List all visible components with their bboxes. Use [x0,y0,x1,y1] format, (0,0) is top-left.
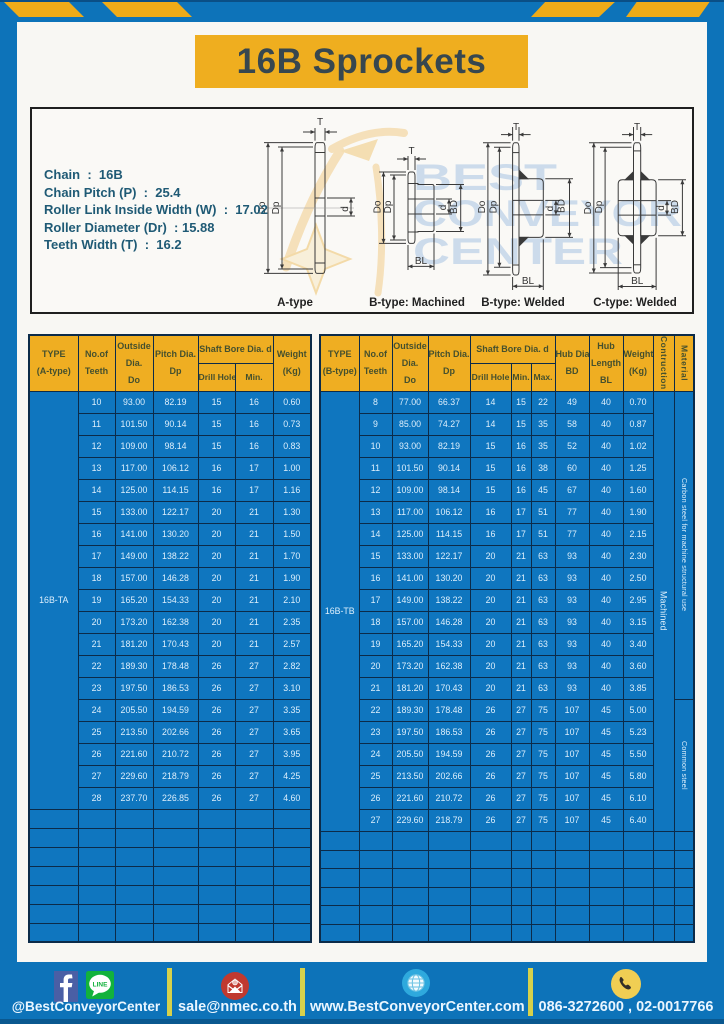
svg-text:T: T [513,122,519,133]
svg-text:T: T [408,146,414,157]
svg-text:Do: Do [477,200,488,213]
svg-text:Dp: Dp [383,200,394,213]
svg-text:T: T [317,117,323,128]
svg-text:BEST: BEST [413,157,558,198]
svg-text:Dp: Dp [488,200,499,213]
svg-text:Do: Do [373,200,384,213]
svg-text:CENTER: CENTER [413,231,623,272]
svg-text:Dp: Dp [594,200,605,213]
svg-text:d: d [438,205,449,211]
svg-text:BD: BD [670,200,681,214]
svg-text:C-type: Welded: C-type: Welded [593,297,677,309]
svg-text:BL: BL [631,276,644,287]
svg-text:Dp: Dp [271,201,282,214]
svg-text:T: T [634,122,640,133]
svg-text:BL: BL [522,276,535,287]
svg-text:Do: Do [583,201,594,214]
svg-text:BD: BD [556,199,567,213]
svg-text:d: d [656,205,667,211]
svg-text:LINE: LINE [93,981,108,988]
svg-text:B-type: Welded: B-type: Welded [481,297,565,309]
svg-text:d: d [545,206,556,212]
svg-text:d: d [340,206,351,212]
svg-text:BD: BD [449,200,460,214]
svg-text:A-type: A-type [277,297,313,309]
svg-text:BL: BL [415,256,428,267]
svg-text:B-type: Machined: B-type: Machined [369,297,465,309]
